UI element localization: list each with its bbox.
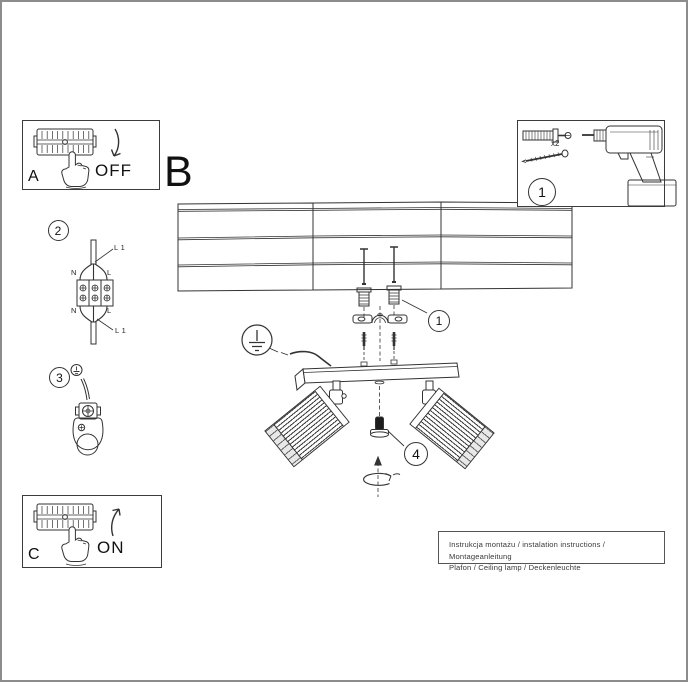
quantity-label: x2 bbox=[551, 139, 559, 148]
step-3-badge: 3 bbox=[49, 367, 70, 388]
step-4-badge: 4 bbox=[404, 442, 428, 466]
wire-label-l-top: L bbox=[107, 268, 111, 277]
wall-plug-icon bbox=[523, 129, 571, 142]
earth-wire-icon bbox=[290, 352, 331, 366]
wiring-diagram-icon bbox=[77, 240, 113, 344]
on-label: ON bbox=[97, 538, 125, 558]
ceiling-planks-icon bbox=[178, 202, 572, 291]
breaker-panel-icon bbox=[34, 129, 96, 155]
panel-c-power-on: ON C bbox=[22, 495, 162, 568]
panel-c-letter: C bbox=[28, 546, 40, 564]
caption-box: Instrukcja montażu / instalation instruc… bbox=[438, 531, 665, 564]
instruction-sheet: OFF A B bbox=[0, 0, 688, 688]
breaker-panel-icon bbox=[34, 504, 96, 530]
canopy-screws-icon bbox=[362, 332, 397, 361]
off-label: OFF bbox=[95, 161, 132, 181]
rotation-arrow-icon bbox=[364, 457, 400, 497]
wire-label-n-top: N bbox=[71, 268, 77, 277]
earth-terminal-icon bbox=[71, 365, 103, 456]
section-b-letter: B bbox=[164, 151, 193, 194]
assembly-diagram bbox=[0, 0, 688, 688]
panel-a-power-off: OFF A bbox=[22, 120, 160, 190]
step-2-badge: 2 bbox=[48, 220, 69, 241]
mounting-screws-icon bbox=[360, 247, 398, 284]
arrow-down-icon bbox=[112, 129, 121, 156]
lamp-pivots-icon bbox=[330, 381, 440, 404]
wire-label-l1-bottom: L 1 bbox=[115, 326, 126, 335]
hand-icon bbox=[62, 152, 89, 189]
screw-icon bbox=[523, 150, 569, 162]
step-1-badge: 1 bbox=[528, 178, 556, 206]
wire-label-n-bottom: N bbox=[71, 306, 77, 315]
caption-line-1: Instrukcja montażu / instalation instruc… bbox=[449, 539, 658, 562]
hand-icon bbox=[62, 527, 89, 566]
arrow-up-icon bbox=[112, 509, 120, 536]
step-1-diagram-badge: 1 bbox=[428, 310, 450, 332]
wire-label-l1-top: L 1 bbox=[114, 243, 125, 252]
tools-panel: x2 1 bbox=[517, 120, 665, 207]
caption-line-2: Plafon / Ceiling lamp / Deckenleuchte bbox=[449, 562, 658, 574]
drill-icon bbox=[582, 126, 676, 206]
earth-symbol-icon bbox=[242, 325, 272, 355]
finial-knob-icon bbox=[371, 417, 389, 437]
panel-a-letter: A bbox=[28, 168, 39, 186]
wire-label-l-bottom: L bbox=[107, 306, 111, 315]
